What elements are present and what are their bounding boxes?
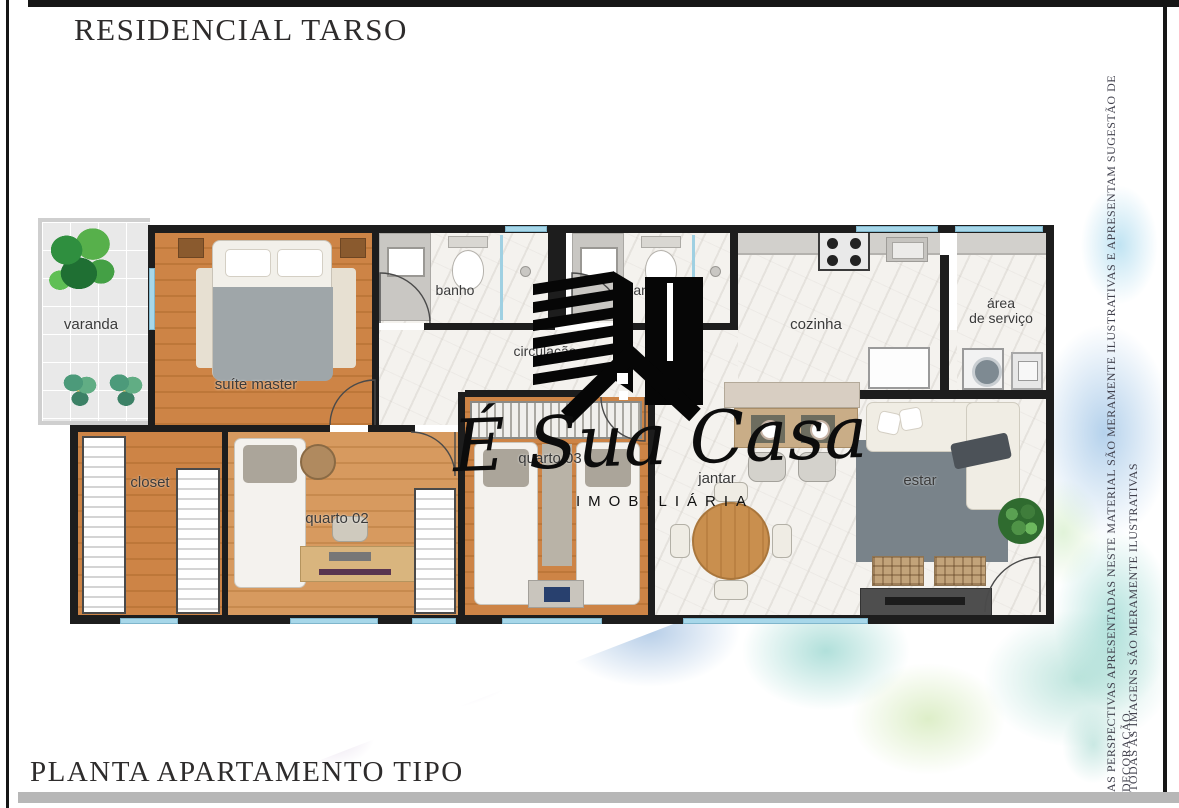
frame-right-line bbox=[1163, 6, 1167, 803]
page-title: RESIDENCIAL TARSO bbox=[74, 12, 408, 48]
door-arcs bbox=[0, 0, 1179, 808]
footer-title: PLANTA APARTAMENTO TIPO bbox=[30, 756, 464, 789]
floor-plan: varanda suíte master banho banho circula… bbox=[0, 0, 1179, 808]
room-label-varanda: varanda bbox=[41, 316, 141, 333]
room-label-area-line2: de serviço bbox=[969, 310, 1033, 326]
room-label-area-line1: área bbox=[987, 295, 1015, 311]
disclaimer-line-2: TODAS AS IMAGENS SÃO MERAMENTE ILUSTRATI… bbox=[1126, 463, 1141, 792]
room-label-circulacao: circulação bbox=[493, 344, 597, 359]
room-label-suite-master: suíte master bbox=[196, 376, 316, 393]
room-label-area-de-servico: área de serviço bbox=[959, 296, 1043, 326]
room-label-closet: closet bbox=[110, 474, 190, 491]
room-label-banho-1: banho bbox=[415, 283, 495, 298]
room-label-banho-2: banho bbox=[605, 283, 685, 298]
floor-plan-page: varanda suíte master banho banho circula… bbox=[0, 0, 1179, 808]
frame-bottom-gray-bar bbox=[18, 792, 1179, 803]
room-label-estar: estar bbox=[880, 472, 960, 489]
frame-left-line bbox=[6, 0, 9, 808]
room-label-quarto-03: quarto 03 bbox=[505, 450, 595, 467]
room-label-jantar: jantar bbox=[677, 470, 757, 487]
room-label-quarto-02: quarto 02 bbox=[292, 510, 382, 527]
room-label-cozinha: cozinha bbox=[776, 316, 856, 333]
frame-top-bar bbox=[28, 0, 1179, 7]
